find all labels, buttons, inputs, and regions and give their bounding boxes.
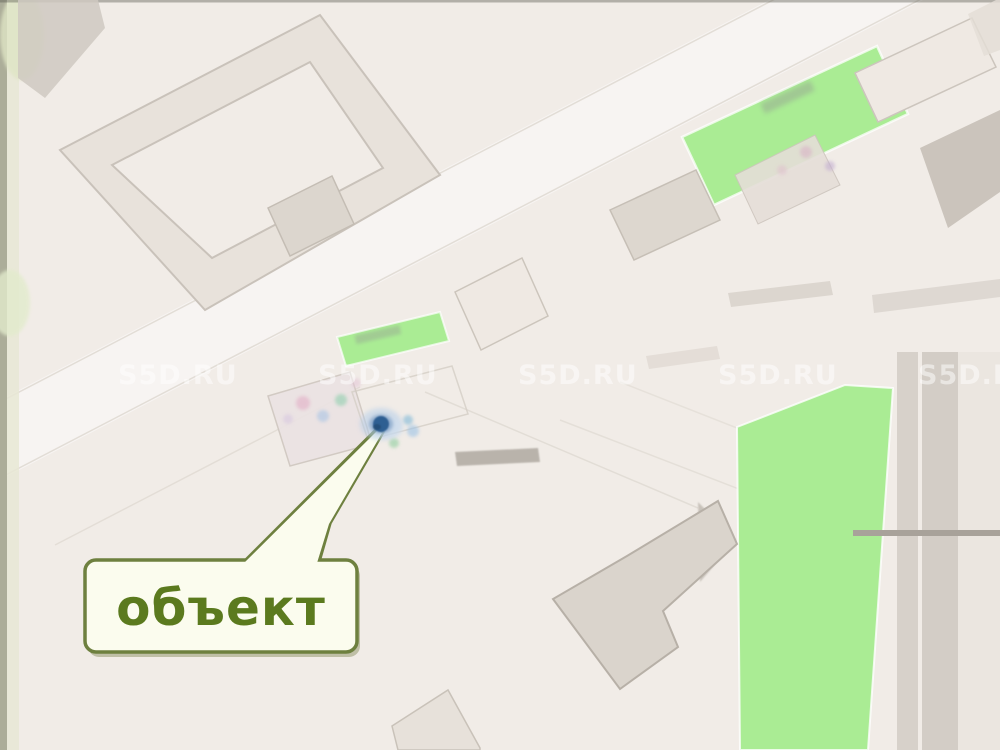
vertical-road-strip-3 [958,352,1000,750]
green-area-park [737,385,893,750]
map-viewport[interactable]: S5D.RU S5D.RU S5D.RU S5D.RU S5D.RU объек… [0,0,1000,750]
vertical-road-strip-1 [897,352,918,750]
left-edge-strip-light [7,0,19,750]
top-edge-line [0,0,1000,3]
left-edge-strip [0,0,7,750]
marker-dot-shade [373,424,381,430]
watermark-text-5: S5D.RU [918,360,1000,391]
callout-label: объект [116,579,326,637]
watermark-text-3: S5D.RU [518,360,638,391]
horizontal-path-line [853,530,1000,536]
watermark-text-2: S5D.RU [318,360,438,391]
watermark-text-1: S5D.RU [118,360,238,391]
vertical-road-strip-2 [922,352,958,750]
watermark-text-4: S5D.RU [718,360,838,391]
